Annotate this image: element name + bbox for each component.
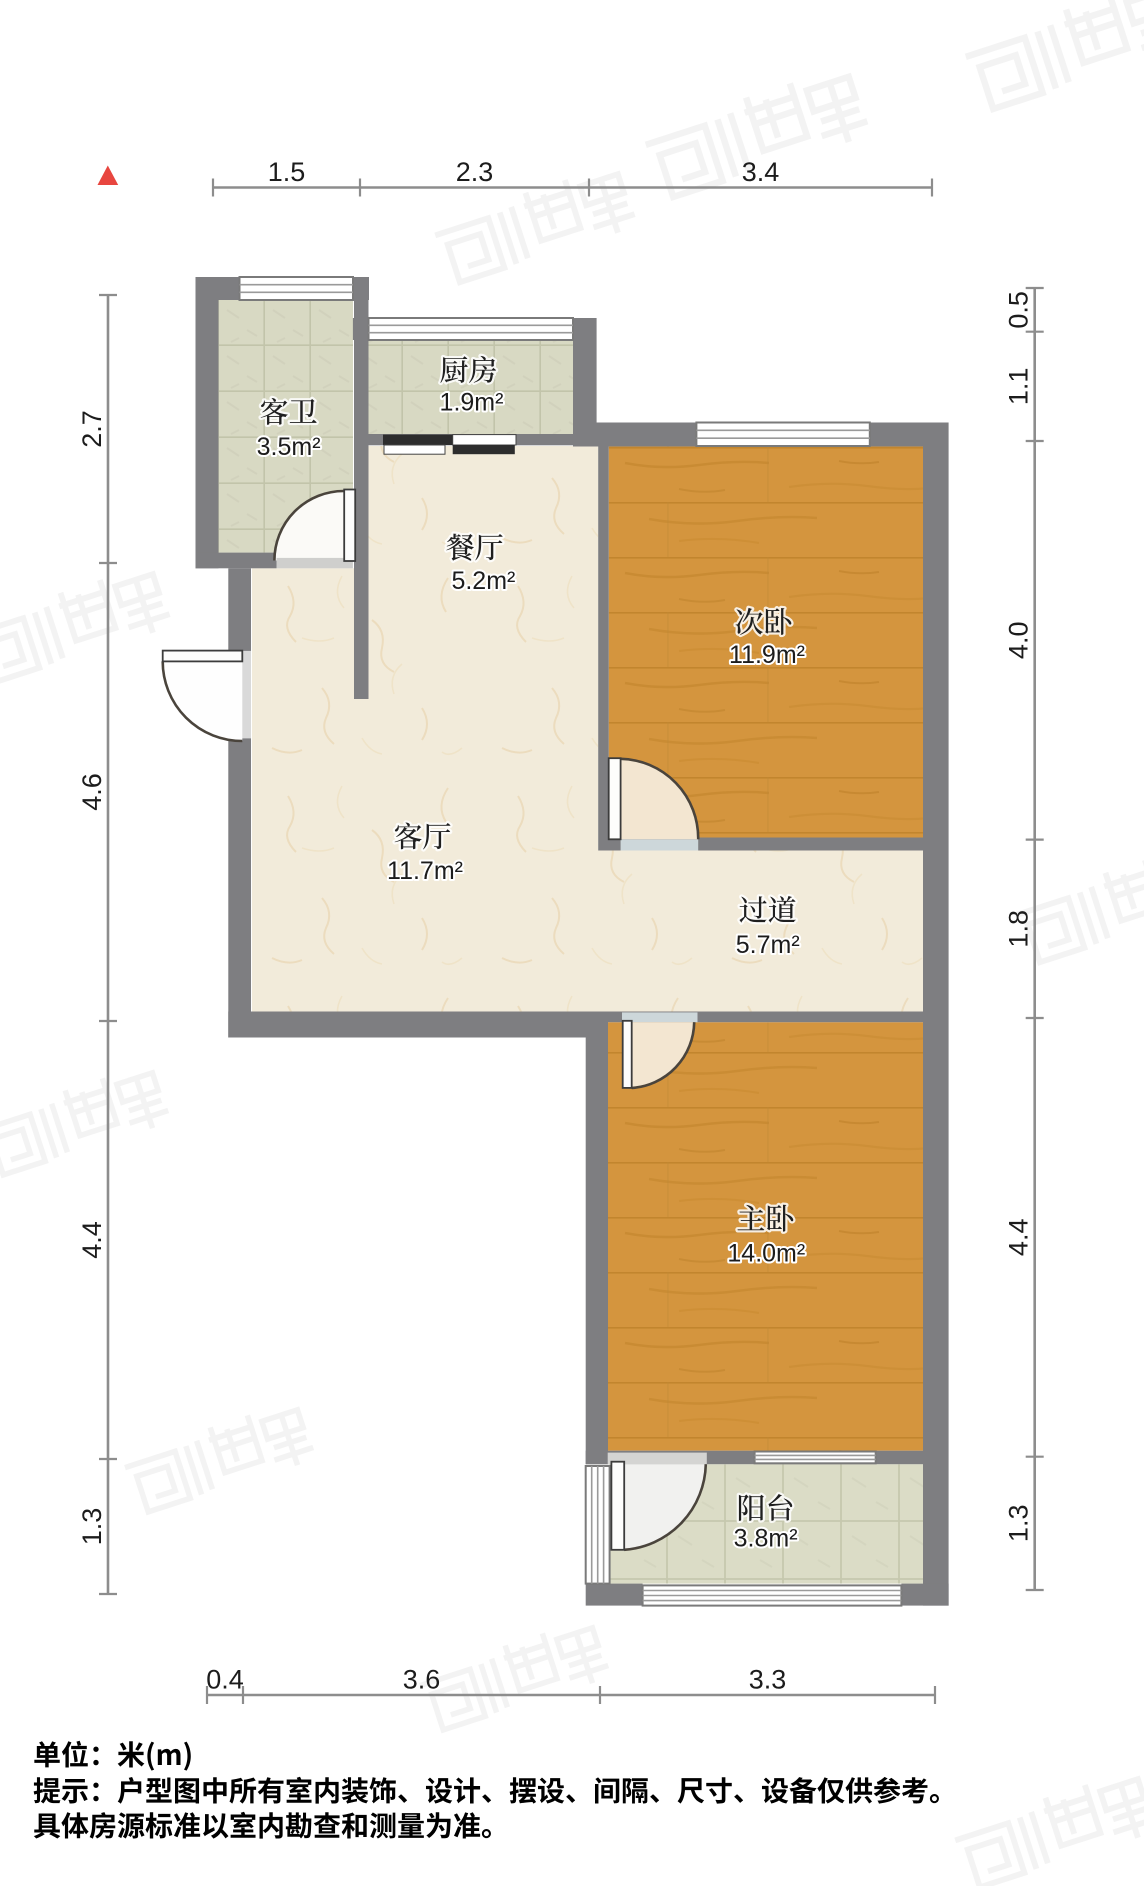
svg-text:1.1: 1.1 <box>1004 368 1034 406</box>
svg-text:2.7: 2.7 <box>77 410 107 448</box>
svg-text:3.8m²: 3.8m² <box>734 1525 798 1553</box>
svg-text:11.9m²: 11.9m² <box>729 641 805 669</box>
svg-text:1.5: 1.5 <box>268 157 306 187</box>
svg-text:5.7m²: 5.7m² <box>736 931 800 959</box>
svg-text:4.4: 4.4 <box>77 1221 107 1259</box>
svg-text:1.3: 1.3 <box>77 1508 107 1546</box>
svg-text:3.3: 3.3 <box>749 1665 787 1695</box>
svg-text:5.2m²: 5.2m² <box>451 567 515 595</box>
svg-text:4.4: 4.4 <box>1004 1219 1034 1257</box>
svg-text:11.7m²: 11.7m² <box>387 857 463 885</box>
svg-text:2.3: 2.3 <box>456 157 494 187</box>
svg-text:1.9m²: 1.9m² <box>440 388 504 416</box>
svg-text:1.8: 1.8 <box>1004 910 1034 948</box>
svg-text:14.0m²: 14.0m² <box>727 1240 805 1268</box>
svg-text:0.5: 0.5 <box>1004 291 1034 329</box>
svg-text:3.4: 3.4 <box>742 157 780 187</box>
svg-text:4.0: 4.0 <box>1004 622 1034 660</box>
svg-text:3.5m²: 3.5m² <box>257 433 321 461</box>
svg-text:0.4: 0.4 <box>206 1665 244 1695</box>
svg-text:1.3: 1.3 <box>1004 1505 1034 1543</box>
svg-text:3.6: 3.6 <box>403 1665 441 1695</box>
svg-text:4.6: 4.6 <box>77 773 107 811</box>
